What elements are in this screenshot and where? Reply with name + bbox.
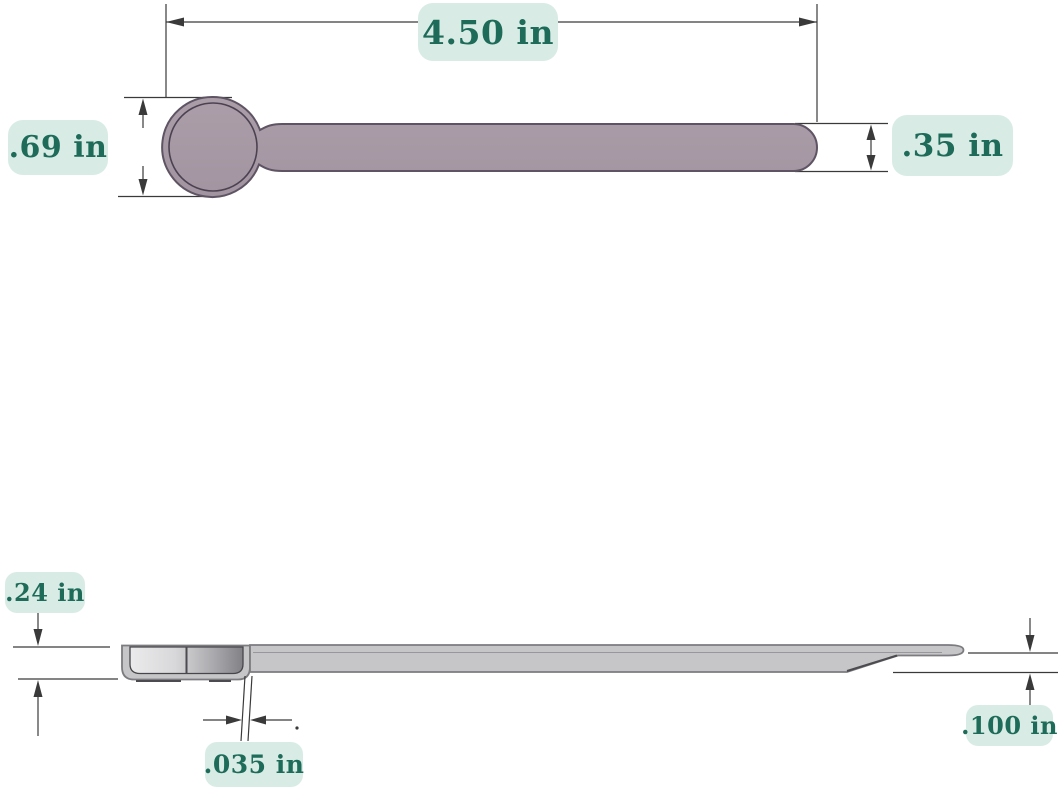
- side-height-dimension-label: .24 in: [5, 572, 85, 613]
- scoop-side-view: [122, 645, 964, 681]
- arrowhead-up-icon: [1026, 674, 1035, 691]
- dimension-thickness: [203, 676, 299, 741]
- arrowhead-down-icon: [139, 179, 148, 196]
- arrowhead-down-icon: [34, 629, 43, 646]
- scoop-top-view: [162, 97, 817, 197]
- dimension-diagram: 4.50 in .69 in .35 in .24 in .035 in .10…: [0, 0, 1063, 788]
- dimension-side-height: [13, 613, 118, 736]
- tip-height-dimension-label: .100 in: [966, 705, 1053, 746]
- arrowhead-up-icon: [867, 125, 876, 141]
- arrowhead-up-icon: [34, 680, 43, 697]
- thickness-dimension-label: .035 in: [205, 742, 303, 787]
- arrowhead-right-icon: [226, 716, 242, 725]
- arrowhead-left-icon: [250, 716, 266, 725]
- leader-dot: [295, 726, 298, 729]
- length-dimension-label: 4.50 in: [418, 3, 558, 61]
- arrowhead-left-icon: [166, 18, 184, 27]
- head-width-dimension-label: .69 in: [8, 120, 108, 175]
- arrowhead-down-icon: [867, 155, 876, 171]
- arrowhead-down-icon: [1026, 635, 1035, 652]
- arrowhead-right-icon: [799, 18, 817, 27]
- arrowhead-up-icon: [139, 99, 148, 116]
- handle-width-dimension-label: .35 in: [892, 115, 1013, 176]
- scoop-top-outline: [162, 97, 817, 197]
- dimension-tip-height: [893, 618, 1058, 709]
